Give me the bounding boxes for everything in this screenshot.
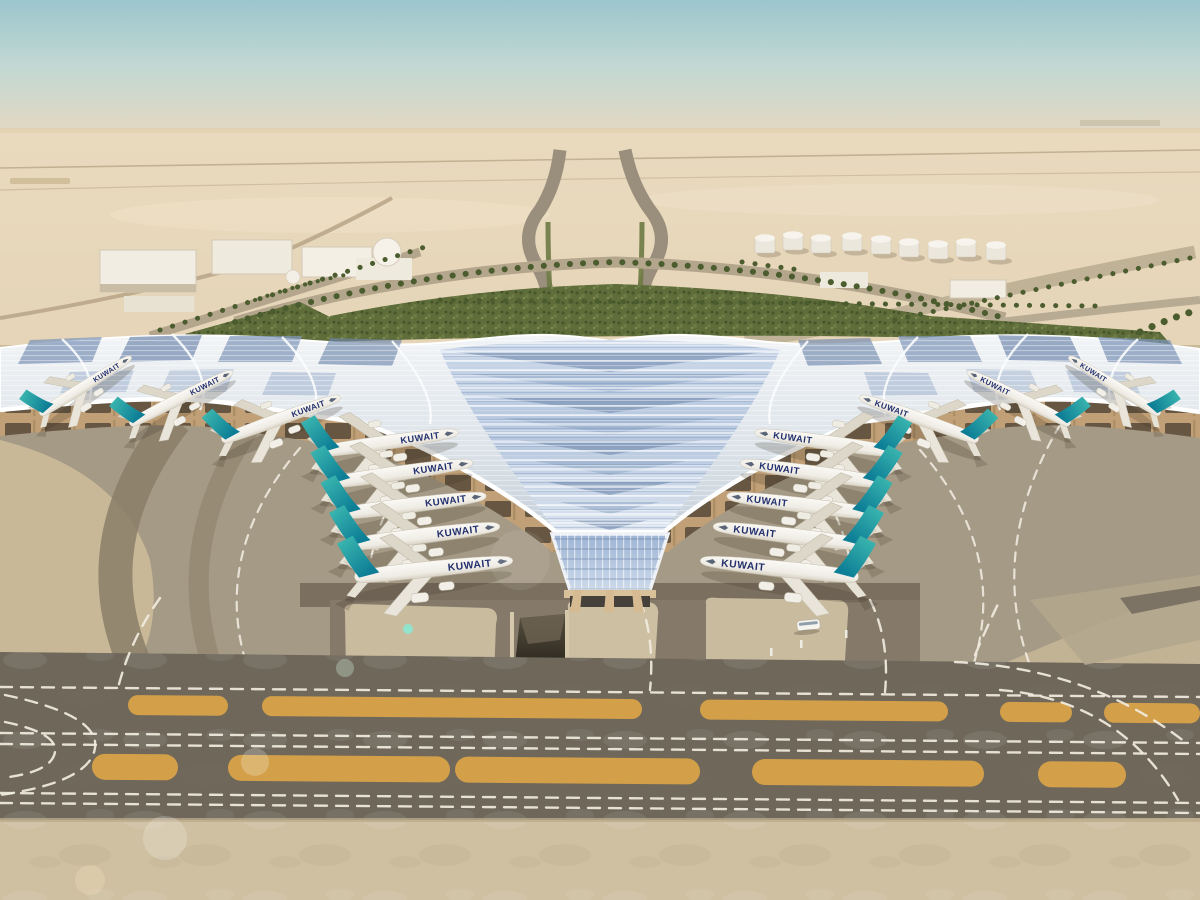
orange-strip-1-5 xyxy=(1104,703,1200,724)
orange-strip-2-3 xyxy=(455,757,700,785)
warehouse xyxy=(212,240,292,274)
airport-rendering: KUWAITKUWAITKUWAITKUWAITKUWAITKUWAITKUWA… xyxy=(0,0,1200,900)
orange-strip-1-1 xyxy=(128,695,228,716)
sky xyxy=(0,0,1200,150)
small-dome xyxy=(286,270,300,284)
warehouse xyxy=(124,296,194,312)
orange-strip-1-2 xyxy=(262,696,642,719)
orange-strip-2-1 xyxy=(92,754,178,781)
orange-strip-2-5 xyxy=(1038,761,1126,788)
bollard xyxy=(800,640,803,648)
scene-canvas: KUWAITKUWAITKUWAITKUWAITKUWAITKUWAITKUWA… xyxy=(0,0,1200,900)
pavement-seam xyxy=(0,818,1200,822)
distant-vehicle-cluster xyxy=(10,178,70,184)
bollard xyxy=(770,648,773,656)
sand-patch xyxy=(640,184,1160,216)
orange-strip-2-2 xyxy=(228,755,450,783)
median-hedge-left xyxy=(548,222,550,295)
terminal-tip-mullions xyxy=(552,534,668,590)
bottom-concrete-texture xyxy=(0,820,1200,900)
horizon-line xyxy=(0,128,1200,133)
warehouse-shadow xyxy=(100,284,196,292)
tunnel-ramp-top xyxy=(520,614,565,644)
sand-patch xyxy=(110,197,550,233)
bollard xyxy=(845,630,848,638)
orange-strip-1-3 xyxy=(700,699,948,721)
distant-structures xyxy=(1080,120,1160,126)
orange-strip-1-4 xyxy=(1000,702,1072,723)
orange-strip-2-4 xyxy=(752,759,984,787)
dome-building xyxy=(373,238,401,266)
